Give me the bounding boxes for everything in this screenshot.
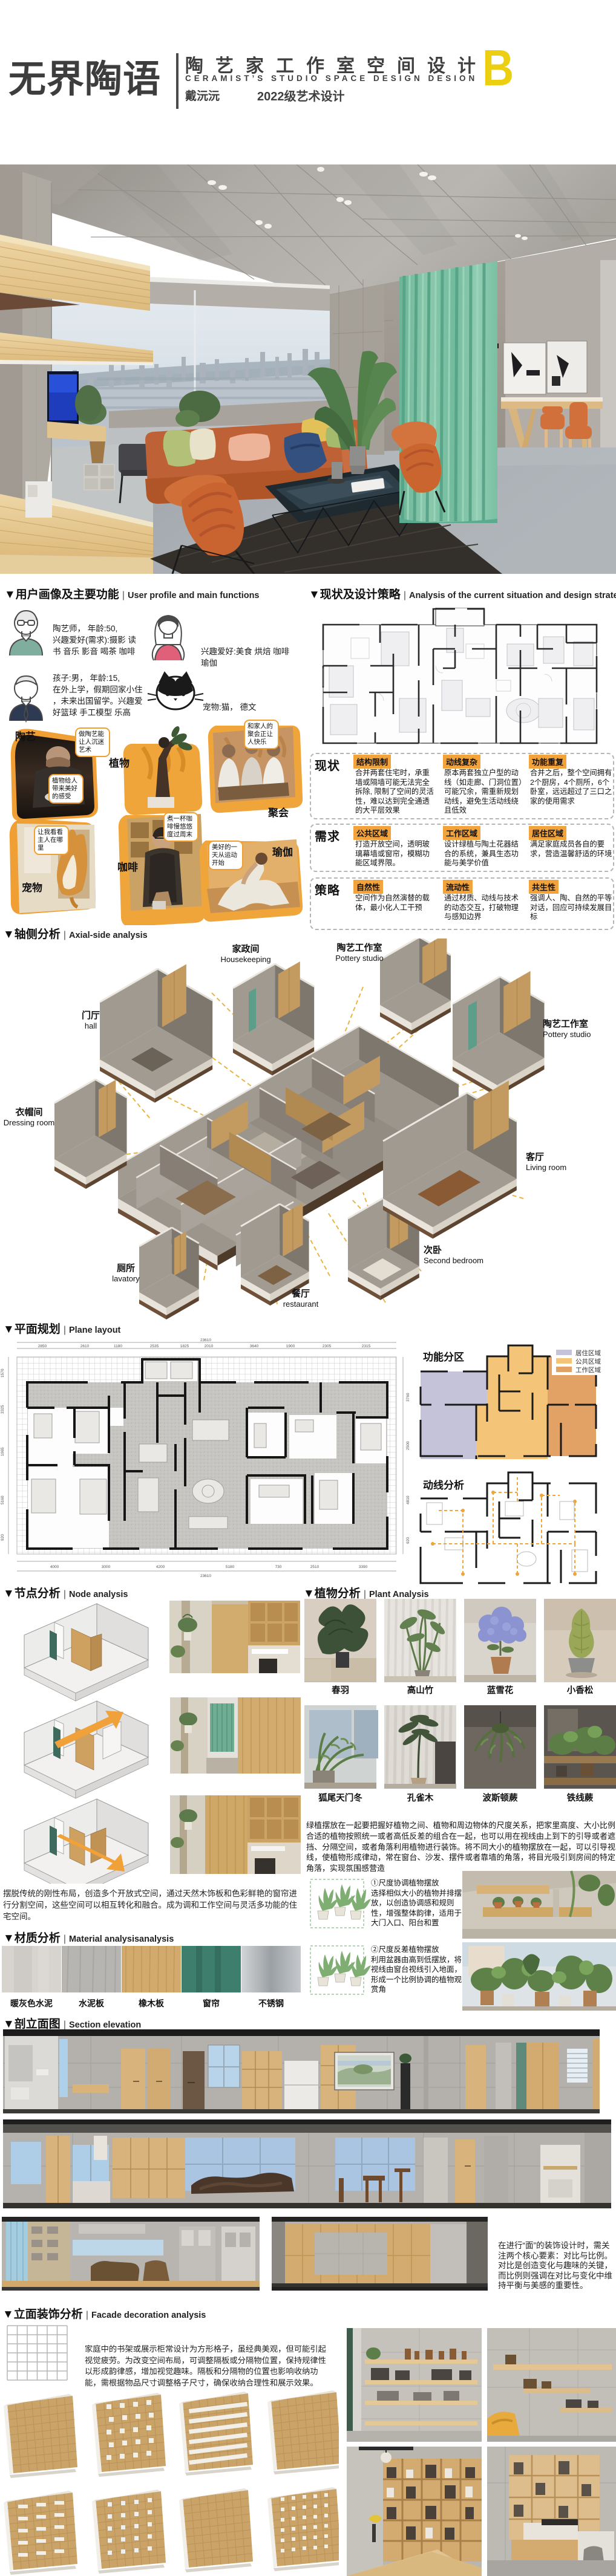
svg-text:4200: 4200 bbox=[156, 1565, 165, 1569]
svg-text:5180: 5180 bbox=[226, 1565, 235, 1569]
svg-text:920: 920 bbox=[1, 1534, 5, 1541]
svg-text:hall: hall bbox=[85, 1021, 97, 1030]
svg-text:门厅: 门厅 bbox=[82, 1010, 100, 1021]
svg-text:2315: 2315 bbox=[362, 1344, 371, 1348]
svg-text:功能分区: 功能分区 bbox=[423, 1351, 464, 1363]
svg-text:2305: 2305 bbox=[323, 1344, 332, 1348]
svg-text:restaurant: restaurant bbox=[283, 1299, 319, 1309]
svg-text:暖灰色水泥: 暖灰色水泥 bbox=[10, 1999, 53, 2008]
svg-text:客厅: 客厅 bbox=[525, 1151, 544, 1162]
svg-text:春羽: 春羽 bbox=[332, 1685, 349, 1696]
svg-text:橡木板: 橡木板 bbox=[139, 1999, 165, 2008]
svg-text:家政间: 家政间 bbox=[232, 943, 259, 954]
svg-text:居住区域: 居住区域 bbox=[575, 1349, 601, 1357]
svg-text:3390: 3390 bbox=[359, 1565, 368, 1569]
svg-text:Dressing room: Dressing room bbox=[4, 1118, 55, 1127]
svg-text:不锈钢: 不锈钢 bbox=[258, 1999, 284, 2008]
svg-text:Second bedroom: Second bedroom bbox=[424, 1256, 483, 1265]
svg-text:餐厅: 餐厅 bbox=[292, 1288, 310, 1299]
svg-text:1825: 1825 bbox=[180, 1344, 189, 1348]
svg-text:3640: 3640 bbox=[250, 1344, 259, 1348]
svg-text:Pottery studio: Pottery studio bbox=[543, 1030, 591, 1039]
svg-text:次卧: 次卧 bbox=[424, 1244, 442, 1255]
svg-text:高山竹: 高山竹 bbox=[407, 1685, 434, 1696]
svg-text:2510: 2510 bbox=[310, 1565, 319, 1569]
svg-text:4810: 4810 bbox=[406, 1495, 410, 1504]
svg-text:小香松: 小香松 bbox=[567, 1685, 594, 1696]
svg-text:23610: 23610 bbox=[200, 1338, 211, 1342]
svg-text:衣帽间: 衣帽间 bbox=[15, 1107, 42, 1117]
svg-text:Pottery studio: Pottery studio bbox=[335, 954, 384, 963]
svg-text:Living room: Living room bbox=[526, 1163, 566, 1172]
svg-text:水泥板: 水泥板 bbox=[79, 1999, 105, 2008]
svg-text:公共区域: 公共区域 bbox=[575, 1358, 601, 1365]
svg-text:5160: 5160 bbox=[1, 1495, 5, 1504]
svg-text:陶艺工作室: 陶艺工作室 bbox=[336, 942, 382, 953]
svg-text:2500: 2500 bbox=[406, 1441, 410, 1450]
svg-text:2850: 2850 bbox=[38, 1344, 47, 1348]
svg-text:波斯顿蕨: 波斯顿蕨 bbox=[483, 1792, 518, 1803]
svg-text:1180: 1180 bbox=[114, 1344, 122, 1348]
svg-text:2535: 2535 bbox=[150, 1344, 159, 1348]
svg-text:工作区域: 工作区域 bbox=[575, 1366, 601, 1374]
svg-text:lavatory: lavatory bbox=[112, 1274, 140, 1283]
svg-text:3325: 3325 bbox=[1, 1405, 5, 1414]
svg-text:铁线蕨: 铁线蕨 bbox=[567, 1792, 594, 1803]
svg-text:3760: 3760 bbox=[406, 1393, 410, 1402]
svg-text:2610: 2610 bbox=[80, 1344, 90, 1348]
svg-text:1065: 1065 bbox=[1, 1447, 5, 1456]
svg-text:2010: 2010 bbox=[205, 1344, 214, 1348]
svg-text:1900: 1900 bbox=[286, 1344, 295, 1348]
svg-text:动线分析: 动线分析 bbox=[423, 1479, 464, 1491]
svg-text:蓝雪花: 蓝雪花 bbox=[487, 1685, 514, 1696]
svg-text:3000: 3000 bbox=[102, 1565, 111, 1569]
svg-text:730: 730 bbox=[275, 1565, 282, 1569]
svg-text:920: 920 bbox=[406, 1537, 410, 1544]
svg-text:窗帘: 窗帘 bbox=[203, 1999, 220, 2008]
svg-text:Housekeeping: Housekeeping bbox=[220, 955, 270, 964]
svg-text:孔雀木: 孔雀木 bbox=[407, 1792, 434, 1803]
svg-text:厕所: 厕所 bbox=[117, 1263, 135, 1273]
svg-text:1570: 1570 bbox=[1, 1368, 5, 1377]
svg-text:4000: 4000 bbox=[50, 1565, 59, 1569]
svg-text:狐尾天门冬: 狐尾天门冬 bbox=[318, 1792, 362, 1803]
svg-text:陶艺工作室: 陶艺工作室 bbox=[543, 1018, 588, 1029]
svg-text:23610: 23610 bbox=[200, 1574, 211, 1578]
